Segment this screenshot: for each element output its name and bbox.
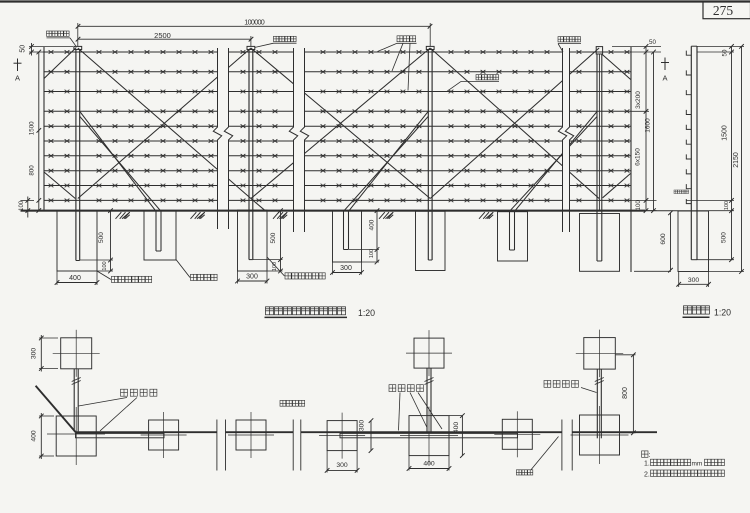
svg-text:1:20: 1:20 [714, 307, 731, 317]
svg-text:A: A [15, 74, 20, 83]
svg-text:300: 300 [246, 273, 258, 280]
svg-text:500: 500 [98, 232, 105, 243]
svg-text:300: 300 [359, 420, 366, 432]
svg-text:2150: 2150 [733, 152, 740, 168]
svg-text:600: 600 [660, 233, 667, 245]
svg-text:400: 400 [369, 219, 376, 230]
svg-text:300: 300 [688, 277, 700, 284]
svg-text:500: 500 [721, 232, 728, 243]
svg-text:400: 400 [31, 430, 38, 442]
svg-text:100: 100 [724, 201, 730, 210]
svg-text:mm: mm [692, 461, 703, 468]
svg-text:50: 50 [649, 39, 656, 46]
svg-text:500: 500 [270, 232, 277, 243]
svg-text:1.: 1. [644, 461, 650, 468]
svg-text:2.: 2. [644, 471, 650, 478]
svg-text:400: 400 [69, 275, 81, 282]
svg-text:100000: 100000 [244, 18, 264, 27]
svg-text:800: 800 [622, 387, 629, 399]
svg-text:A: A [662, 74, 667, 83]
svg-text:300: 300 [31, 348, 38, 360]
svg-text:100: 100 [102, 261, 108, 270]
svg-text:400: 400 [423, 460, 435, 467]
svg-text:1600: 1600 [645, 118, 652, 133]
svg-text:100: 100 [19, 200, 25, 211]
svg-text:2500: 2500 [154, 31, 171, 40]
svg-text:50: 50 [722, 49, 729, 56]
svg-text:400: 400 [453, 422, 460, 434]
svg-text:1500: 1500 [29, 121, 36, 135]
svg-text:50: 50 [20, 45, 27, 53]
svg-text:100: 100 [636, 200, 642, 211]
svg-text:6x150: 6x150 [635, 148, 642, 166]
svg-text:300: 300 [336, 462, 348, 469]
svg-text:100: 100 [369, 249, 375, 258]
svg-text:3x200: 3x200 [635, 91, 642, 109]
svg-text::: : [649, 452, 651, 459]
svg-text:300: 300 [340, 265, 352, 272]
svg-text:800: 800 [29, 165, 36, 176]
svg-text:275: 275 [713, 3, 734, 18]
svg-text:1500: 1500 [722, 125, 729, 141]
svg-text:1:20: 1:20 [358, 308, 375, 318]
